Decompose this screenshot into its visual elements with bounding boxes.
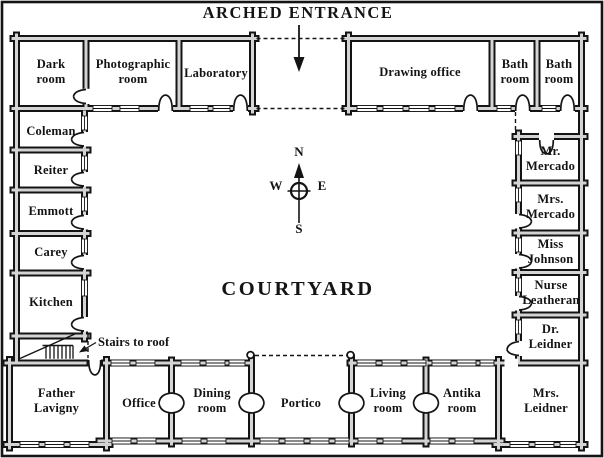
compass-rose-icon xyxy=(288,163,311,223)
room-label-reiter: Reiter xyxy=(20,163,82,178)
room-label-father-lavigny: Father Lavigny xyxy=(20,386,93,416)
room-label-dr-leidner: Dr. Leidner xyxy=(522,322,579,352)
room-label-mrs-mercado: Mrs. Mercado xyxy=(521,192,580,222)
room-label-living-room: Living room xyxy=(360,386,416,416)
room-label-photographic-room: Photographic room xyxy=(88,57,178,87)
page-title: ARCHED ENTRANCE xyxy=(148,3,448,23)
room-label-bath-room-2: Bath room xyxy=(539,57,579,87)
floor-plan: ARCHED ENTRANCE Dark room Photographic r… xyxy=(0,0,604,458)
room-label-dark-room: Dark room xyxy=(26,57,76,87)
room-label-kitchen: Kitchen xyxy=(20,295,82,310)
room-label-mr-mercado: Mr. Mercado xyxy=(522,144,579,174)
room-label-portico: Portico xyxy=(269,396,333,411)
compass-south-label: S xyxy=(291,221,307,237)
room-label-emmott: Emmott xyxy=(20,204,82,219)
room-label-coleman: Coleman xyxy=(20,124,82,139)
compass-east-label: E xyxy=(314,178,330,194)
room-label-antika-room: Antika room xyxy=(434,386,490,416)
room-label-miss-johnson: Miss Johnson xyxy=(522,237,579,267)
entrance-arrow-icon xyxy=(294,25,305,72)
compass-west-label: W xyxy=(268,178,284,194)
compass-north-label: N xyxy=(291,144,307,160)
courtyard-label: COURTYARD xyxy=(178,277,418,302)
room-label-mrs-leidner: Mrs. Leidner xyxy=(510,386,582,416)
room-label-laboratory: Laboratory xyxy=(180,66,252,81)
room-label-bath-room-1: Bath room xyxy=(495,57,535,87)
room-label-nurse-leatheran: Nurse Leatheran xyxy=(520,278,582,308)
room-label-office: Office xyxy=(108,396,170,411)
stairs-to-roof-label: Stairs to roof xyxy=(98,335,208,350)
room-label-carey: Carey xyxy=(20,245,82,260)
room-label-dining-room: Dining room xyxy=(183,386,241,416)
room-label-drawing-office: Drawing office xyxy=(360,65,480,80)
